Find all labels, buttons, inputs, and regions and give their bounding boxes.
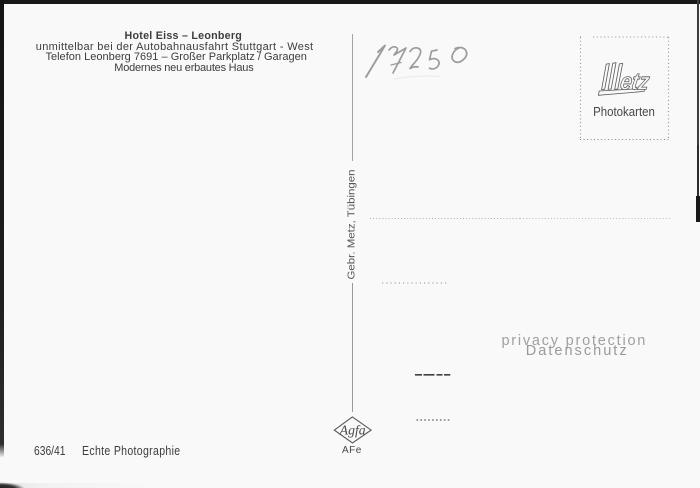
svg-text:Agfa: Agfa: [339, 422, 366, 437]
svg-text:etz: etz: [618, 69, 651, 96]
svg-text:Gebr. Metz, Tübingen: Gebr. Metz, Tübingen: [345, 169, 357, 279]
